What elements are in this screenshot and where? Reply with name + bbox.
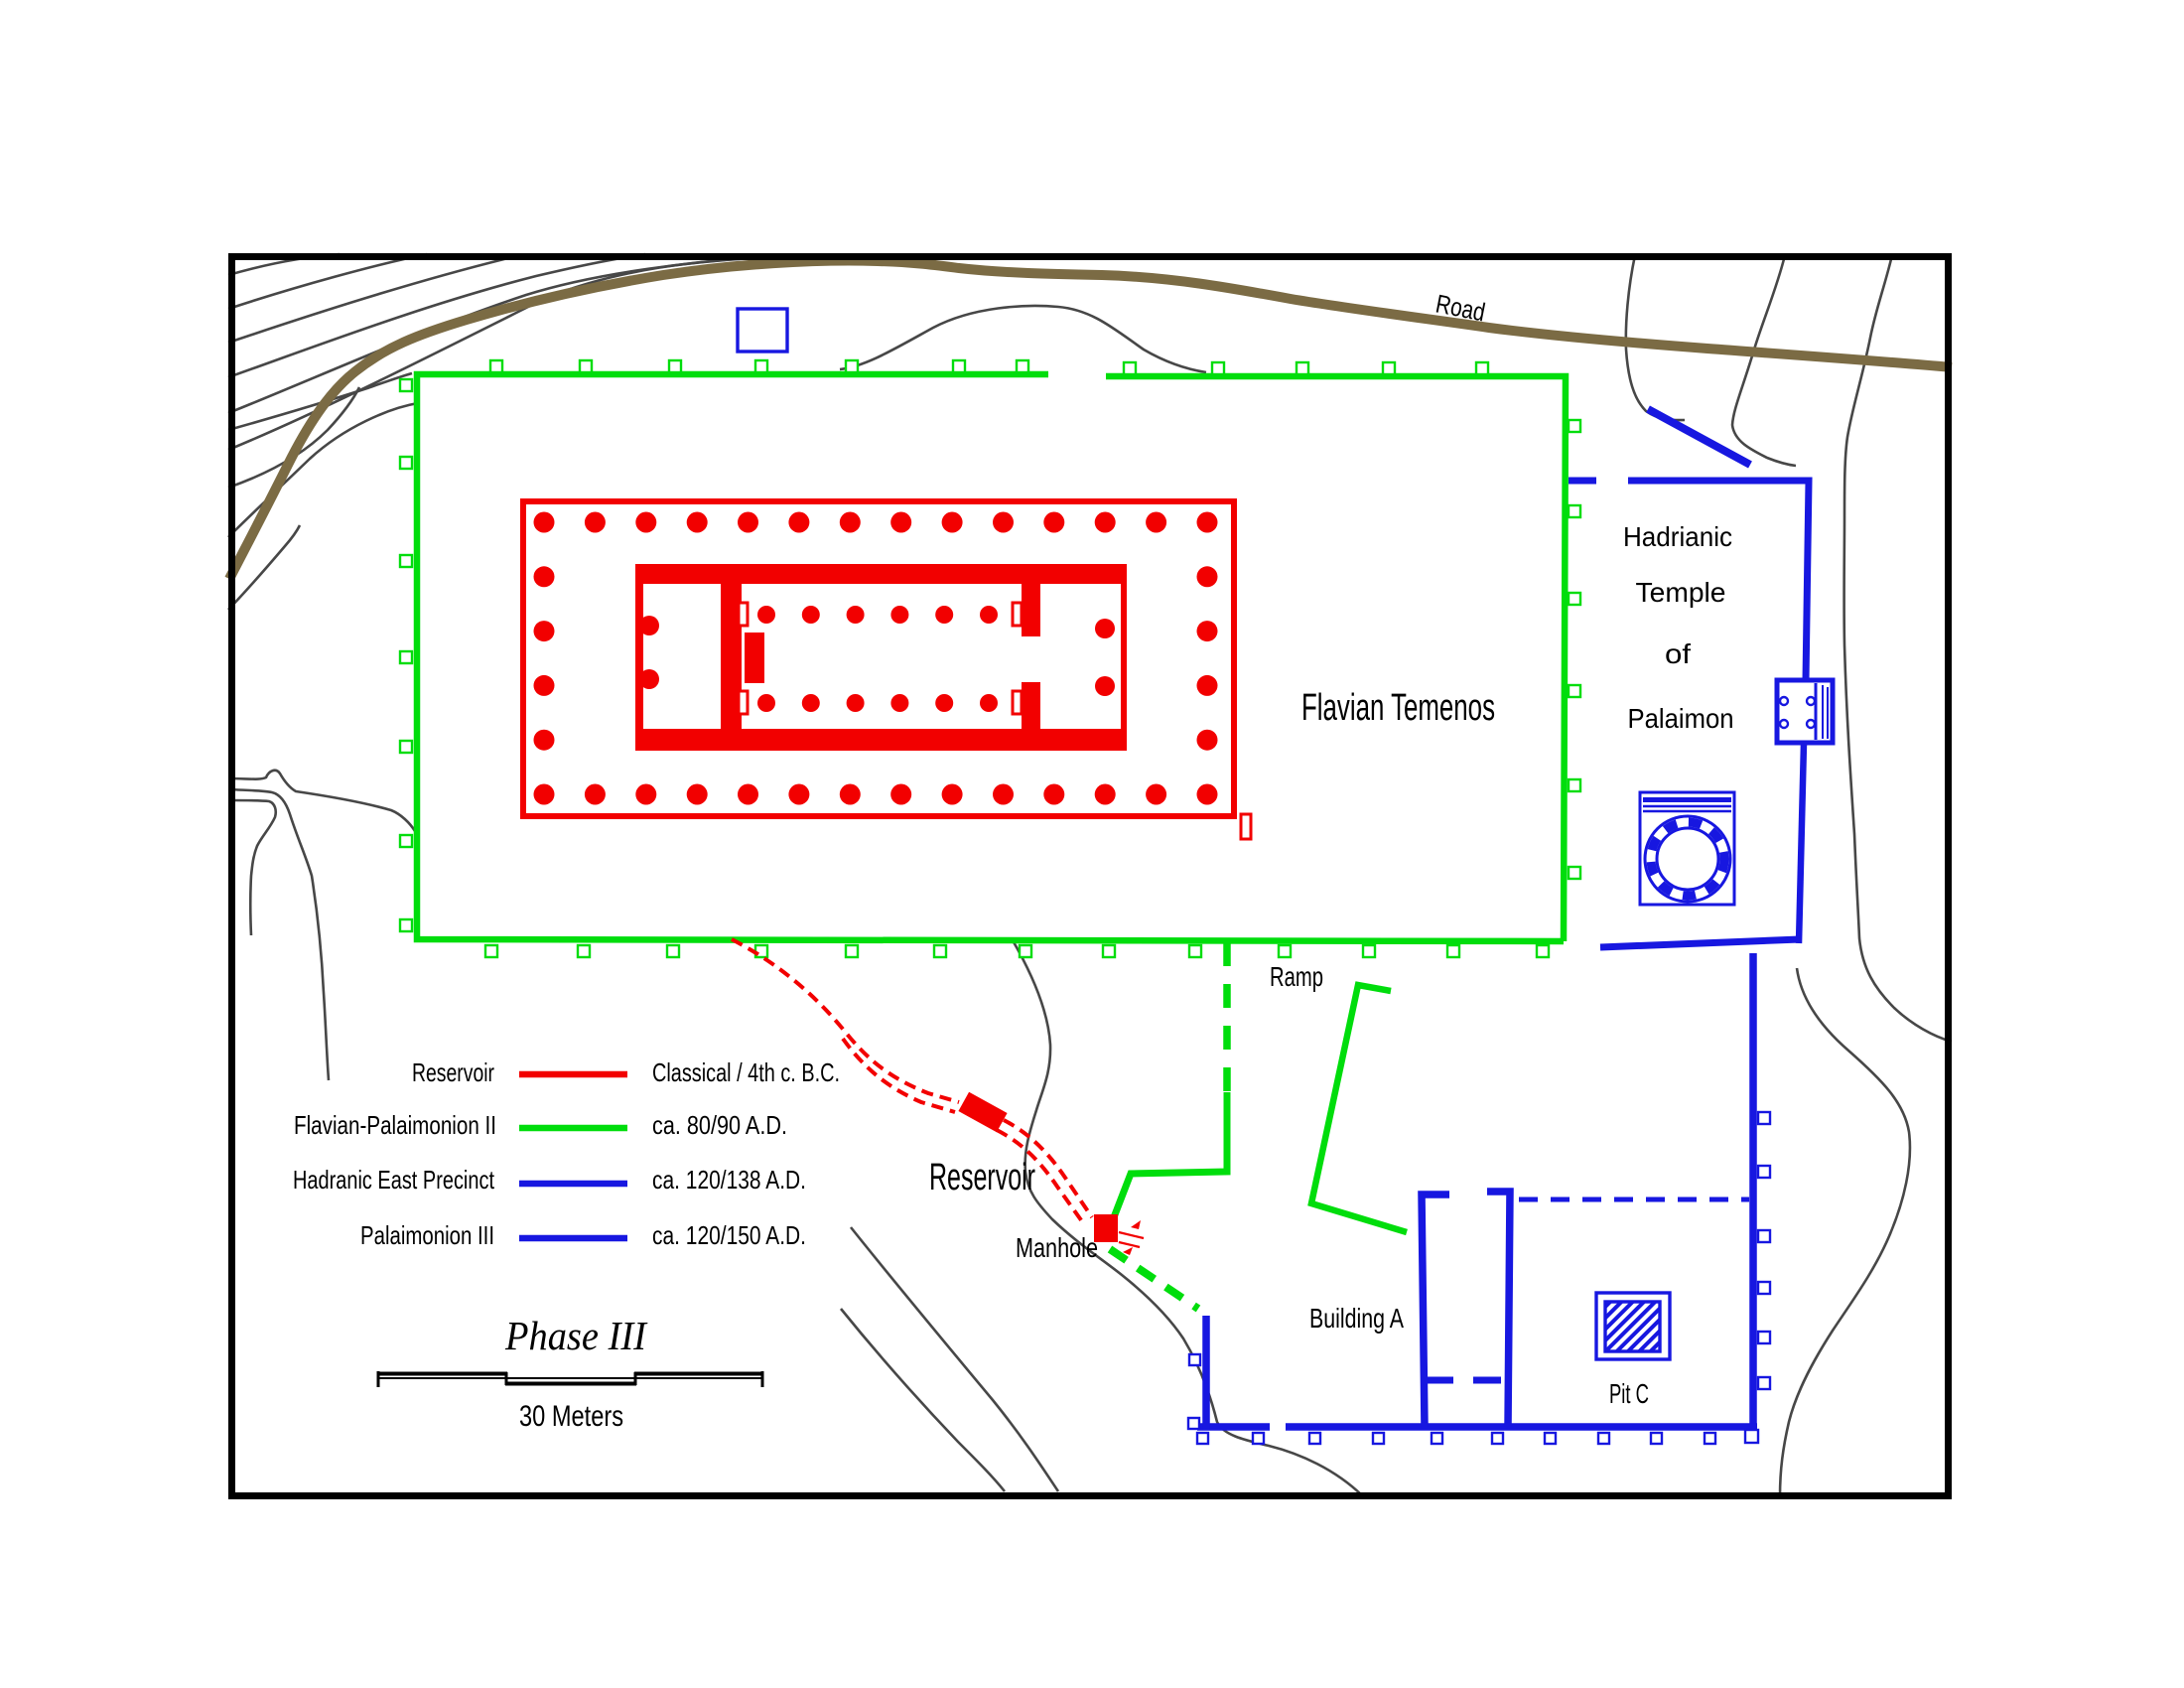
svg-text:Building A: Building A	[1309, 1303, 1404, 1334]
svg-text:Flavian Temenos: Flavian Temenos	[1301, 687, 1495, 729]
svg-text:Hadranic East Precinct: Hadranic East Precinct	[293, 1165, 495, 1195]
svg-text:Pit C: Pit C	[1609, 1378, 1649, 1409]
svg-text:Phase III: Phase III	[504, 1313, 648, 1358]
svg-text:ca. 120/150 A.D.: ca. 120/150 A.D.	[652, 1220, 806, 1250]
svg-text:ca. 80/90 A.D.: ca. 80/90 A.D.	[652, 1110, 787, 1140]
svg-text:Manhole: Manhole	[1016, 1232, 1098, 1263]
svg-text:Reservoir: Reservoir	[412, 1057, 494, 1087]
svg-text:of: of	[1665, 638, 1691, 669]
svg-text:30 Meters: 30 Meters	[519, 1400, 623, 1433]
svg-text:ca. 120/138 A.D.: ca. 120/138 A.D.	[652, 1165, 806, 1195]
svg-text:Temple: Temple	[1636, 577, 1726, 608]
svg-text:Palaimonion III: Palaimonion III	[360, 1220, 494, 1250]
svg-text:Ramp: Ramp	[1270, 961, 1323, 992]
svg-text:Hadrianic: Hadrianic	[1623, 521, 1732, 552]
svg-text:Palaimon: Palaimon	[1628, 703, 1734, 734]
svg-text:Classical / 4th c. B.C.: Classical / 4th c. B.C.	[652, 1057, 840, 1087]
svg-text:Reservoir: Reservoir	[929, 1157, 1035, 1198]
svg-text:Flavian-Palaimonion II: Flavian-Palaimonion II	[294, 1110, 496, 1140]
